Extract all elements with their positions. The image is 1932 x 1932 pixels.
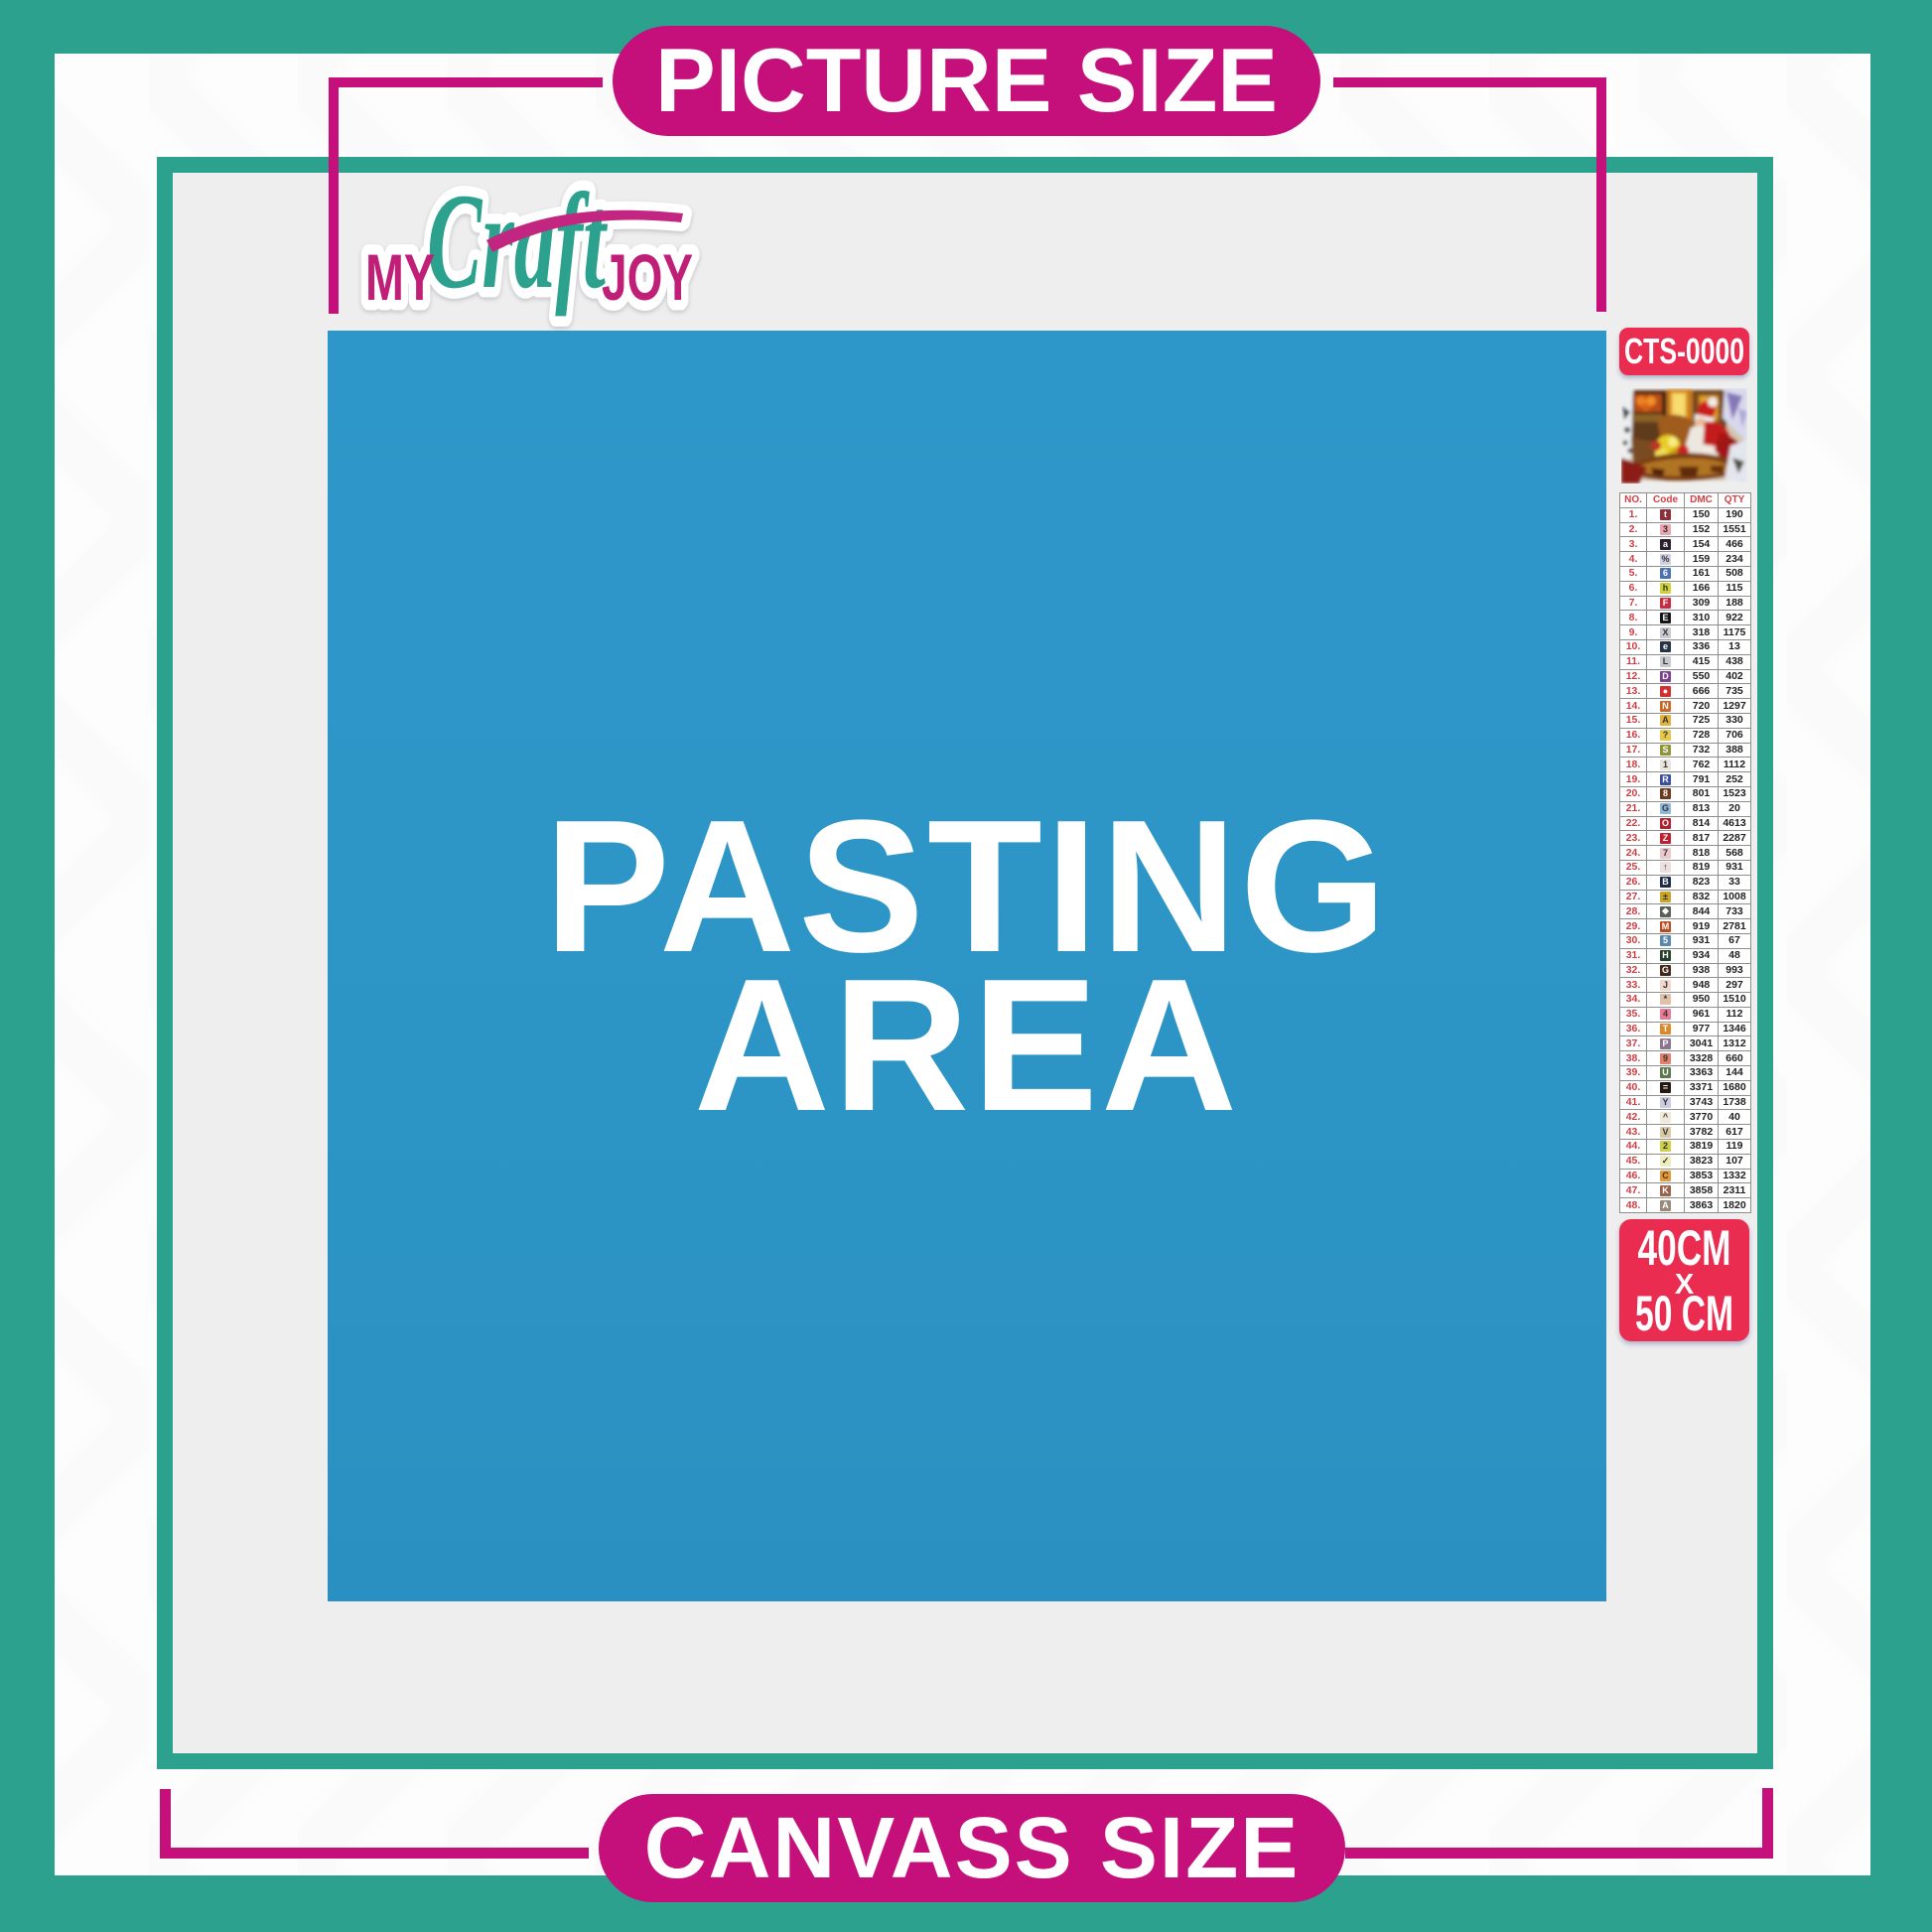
svg-text:JOY: JOY bbox=[602, 240, 693, 314]
svg-text:50 CM: 50 CM bbox=[1635, 1286, 1733, 1341]
svg-text:40CM: 40CM bbox=[1638, 1220, 1731, 1276]
svg-text:MY: MY bbox=[365, 240, 435, 314]
svg-text:CTS-0000: CTS-0000 bbox=[1624, 331, 1744, 371]
